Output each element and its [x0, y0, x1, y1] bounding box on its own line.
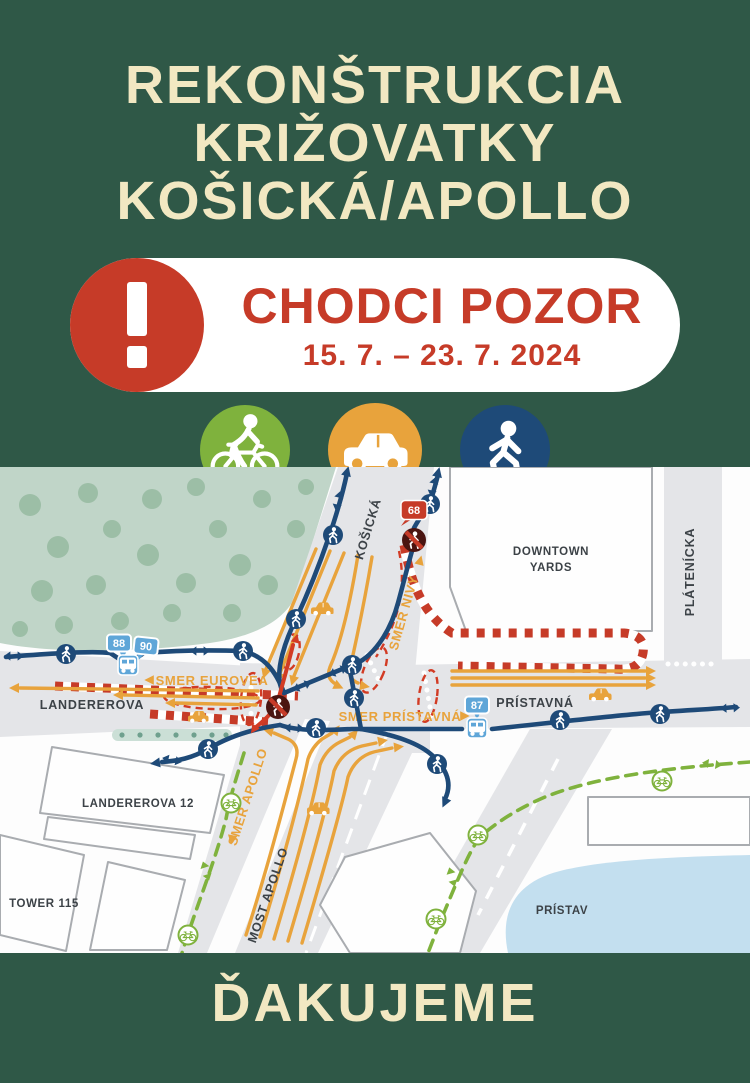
bike-route-icon [653, 772, 672, 791]
pedestrian-route-icon [323, 525, 343, 545]
label-downtown-yards-2: YARDS [530, 562, 572, 574]
title-line-3: KOŠICKÁ/APOLLO [0, 172, 750, 230]
pedestrian-route-icon [286, 609, 306, 629]
thanks-text: ĎAKUJEME [0, 972, 750, 1034]
svg-text:87: 87 [471, 700, 483, 712]
pedestrian-route-icon [198, 739, 218, 759]
title-line-2: KRIŽOVATKY [0, 114, 750, 172]
pedestrian-route-icon [344, 688, 364, 708]
label-platenicka: PLÁTENÍCKA [682, 528, 697, 617]
pedestrian-route-icon [342, 655, 362, 675]
no-pedestrian-icon [402, 528, 426, 552]
label-downtown-yards-1: DOWNTOWN [513, 546, 589, 558]
bike-route-icon [427, 910, 446, 929]
building-bottom-right [588, 797, 750, 845]
label-smer-eurovea: SMER EUROVEA [156, 673, 269, 688]
alert-banner: CHODCI POZOR 15. 7. – 23. 7. 2024 [70, 258, 680, 392]
pedestrian-route-icon [233, 641, 253, 661]
exclamation-warning-icon [70, 258, 204, 392]
intersection-map: SMER EUROVEA SMER NIVY SMER PRÍSTAVNÁ SM… [0, 467, 750, 953]
roadworks-poster: REKONŠTRUKCIA KRIŽOVATKY KOŠICKÁ/APOLLO … [0, 0, 750, 1083]
bike-route-icon [222, 794, 241, 813]
svg-text:68: 68 [408, 505, 420, 517]
alert-headline: CHODCI POZOR [220, 277, 664, 335]
pedestrian-route-icon [56, 644, 76, 664]
map-svg: SMER EUROVEA SMER NIVY SMER PRÍSTAVNÁ SM… [0, 467, 750, 953]
pedestrian-route-icon [550, 710, 570, 730]
bus-icon [467, 718, 487, 738]
label-landererova: LANDEREROVA [40, 698, 144, 712]
poster-title: REKONŠTRUKCIA KRIŽOVATKY KOŠICKÁ/APOLLO [0, 56, 750, 230]
pedestrian-route-icon [306, 718, 326, 738]
pedestrian-route-icon [427, 754, 447, 774]
bus-icon [118, 655, 138, 675]
title-line-1: REKONŠTRUKCIA [0, 56, 750, 114]
label-pristav: PRÍSTAV [536, 904, 588, 917]
label-tower-115: TOWER 115 [9, 898, 79, 910]
label-landererova-12: LANDEREROVA 12 [82, 798, 194, 810]
svg-text:90: 90 [139, 640, 152, 653]
median-green-strip [112, 729, 232, 741]
no-pedestrian-icon [266, 695, 290, 719]
bike-route-icon [179, 926, 198, 945]
alert-text: CHODCI POZOR 15. 7. – 23. 7. 2024 [220, 277, 664, 373]
label-pristavna: PRÍSTAVNÁ [496, 695, 574, 710]
pedestrian-route-icon [650, 704, 670, 724]
bike-route-icon [469, 826, 488, 845]
svg-text:88: 88 [113, 638, 125, 650]
alert-dates: 15. 7. – 23. 7. 2024 [220, 339, 664, 373]
